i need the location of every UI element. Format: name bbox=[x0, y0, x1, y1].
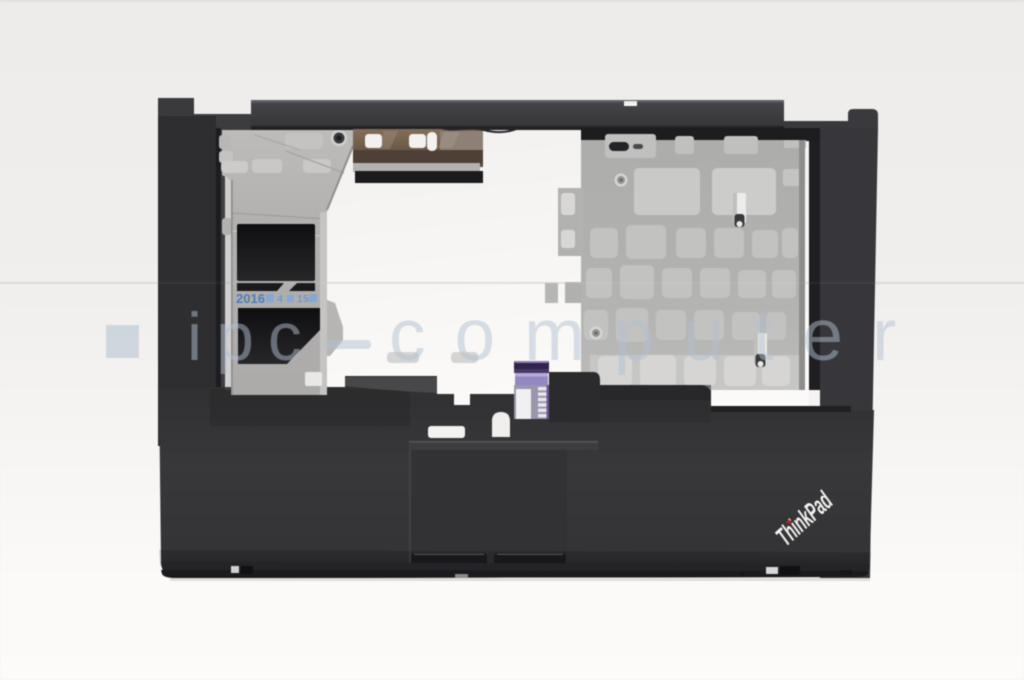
svg-text:ipc: ipc bbox=[187, 299, 316, 375]
svg-text:computer: computer bbox=[389, 295, 925, 376]
